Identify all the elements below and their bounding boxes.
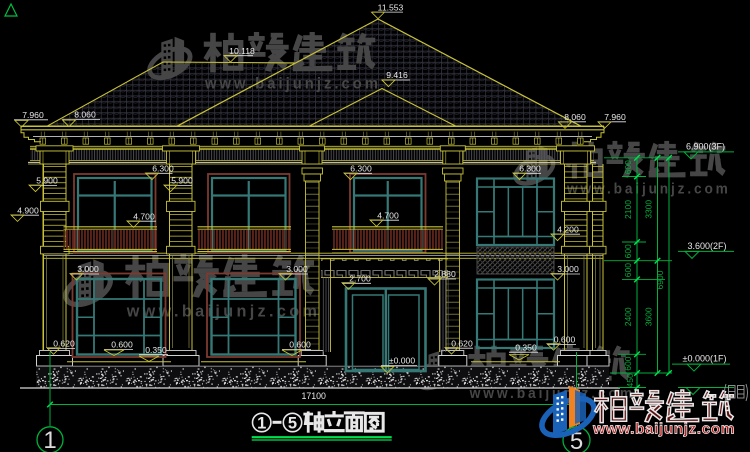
svg-text:6.300: 6.300: [519, 164, 541, 174]
svg-text:3300: 3300: [644, 200, 654, 219]
svg-text:2400: 2400: [623, 307, 633, 326]
svg-text:600: 600: [623, 244, 633, 258]
svg-text:2100: 2100: [623, 200, 633, 219]
svg-text:0.620: 0.620: [53, 339, 75, 349]
svg-text:6.900(3F): 6.900(3F): [686, 141, 725, 151]
svg-text:www.baijunjz.com: www.baijunjz.com: [566, 181, 731, 197]
svg-text:5.900: 5.900: [36, 176, 58, 186]
svg-text:11.553: 11.553: [378, 2, 404, 12]
svg-text:3.000: 3.000: [286, 264, 308, 274]
svg-text:450: 450: [625, 373, 635, 387]
svg-text:3.000: 3.000: [77, 264, 99, 274]
svg-text:2.880: 2.880: [434, 269, 456, 279]
svg-text:6.300: 6.300: [350, 164, 372, 174]
svg-text:4.200: 4.200: [557, 224, 579, 234]
svg-text:1: 1: [43, 427, 56, 452]
svg-text:10.118: 10.118: [229, 46, 255, 56]
svg-text:600: 600: [623, 356, 633, 370]
svg-text:0.600: 0.600: [289, 340, 311, 350]
svg-text:3600: 3600: [644, 307, 654, 326]
svg-text:0.600: 0.600: [111, 340, 133, 350]
svg-text:4.900: 4.900: [17, 205, 39, 215]
svg-text:4.700: 4.700: [377, 210, 399, 220]
svg-text:600: 600: [623, 263, 633, 277]
svg-text:0.350: 0.350: [515, 342, 537, 352]
svg-text:3.600(2F): 3.600(2F): [687, 241, 726, 251]
svg-text:5.900: 5.900: [171, 176, 193, 186]
svg-text:0.620: 0.620: [451, 338, 473, 348]
svg-text:600: 600: [623, 160, 633, 174]
svg-text:2.700: 2.700: [349, 274, 371, 284]
svg-text:4.700: 4.700: [133, 211, 155, 221]
svg-text:3.000: 3.000: [557, 264, 579, 274]
svg-text:±0.000(1F): ±0.000(1F): [683, 353, 727, 363]
svg-text:0.600: 0.600: [554, 335, 576, 345]
svg-text:9.416: 9.416: [386, 70, 408, 80]
svg-text:1: 1: [257, 414, 266, 432]
svg-text:www.baijunjz.com: www.baijunjz.com: [204, 76, 381, 93]
svg-text:8.060: 8.060: [74, 110, 96, 120]
svg-text:www.baijunjz.com: www.baijunjz.com: [592, 421, 735, 438]
svg-text:7.960: 7.960: [604, 112, 626, 122]
svg-text:6900: 6900: [655, 270, 665, 289]
svg-text:±0.000: ±0.000: [389, 356, 415, 366]
svg-text:5: 5: [288, 414, 297, 432]
svg-text:0.350: 0.350: [145, 345, 167, 355]
svg-text:17100: 17100: [301, 391, 326, 401]
svg-text:6.300: 6.300: [152, 164, 174, 174]
svg-text:7.960: 7.960: [22, 110, 44, 120]
svg-text:8.060: 8.060: [564, 112, 586, 122]
